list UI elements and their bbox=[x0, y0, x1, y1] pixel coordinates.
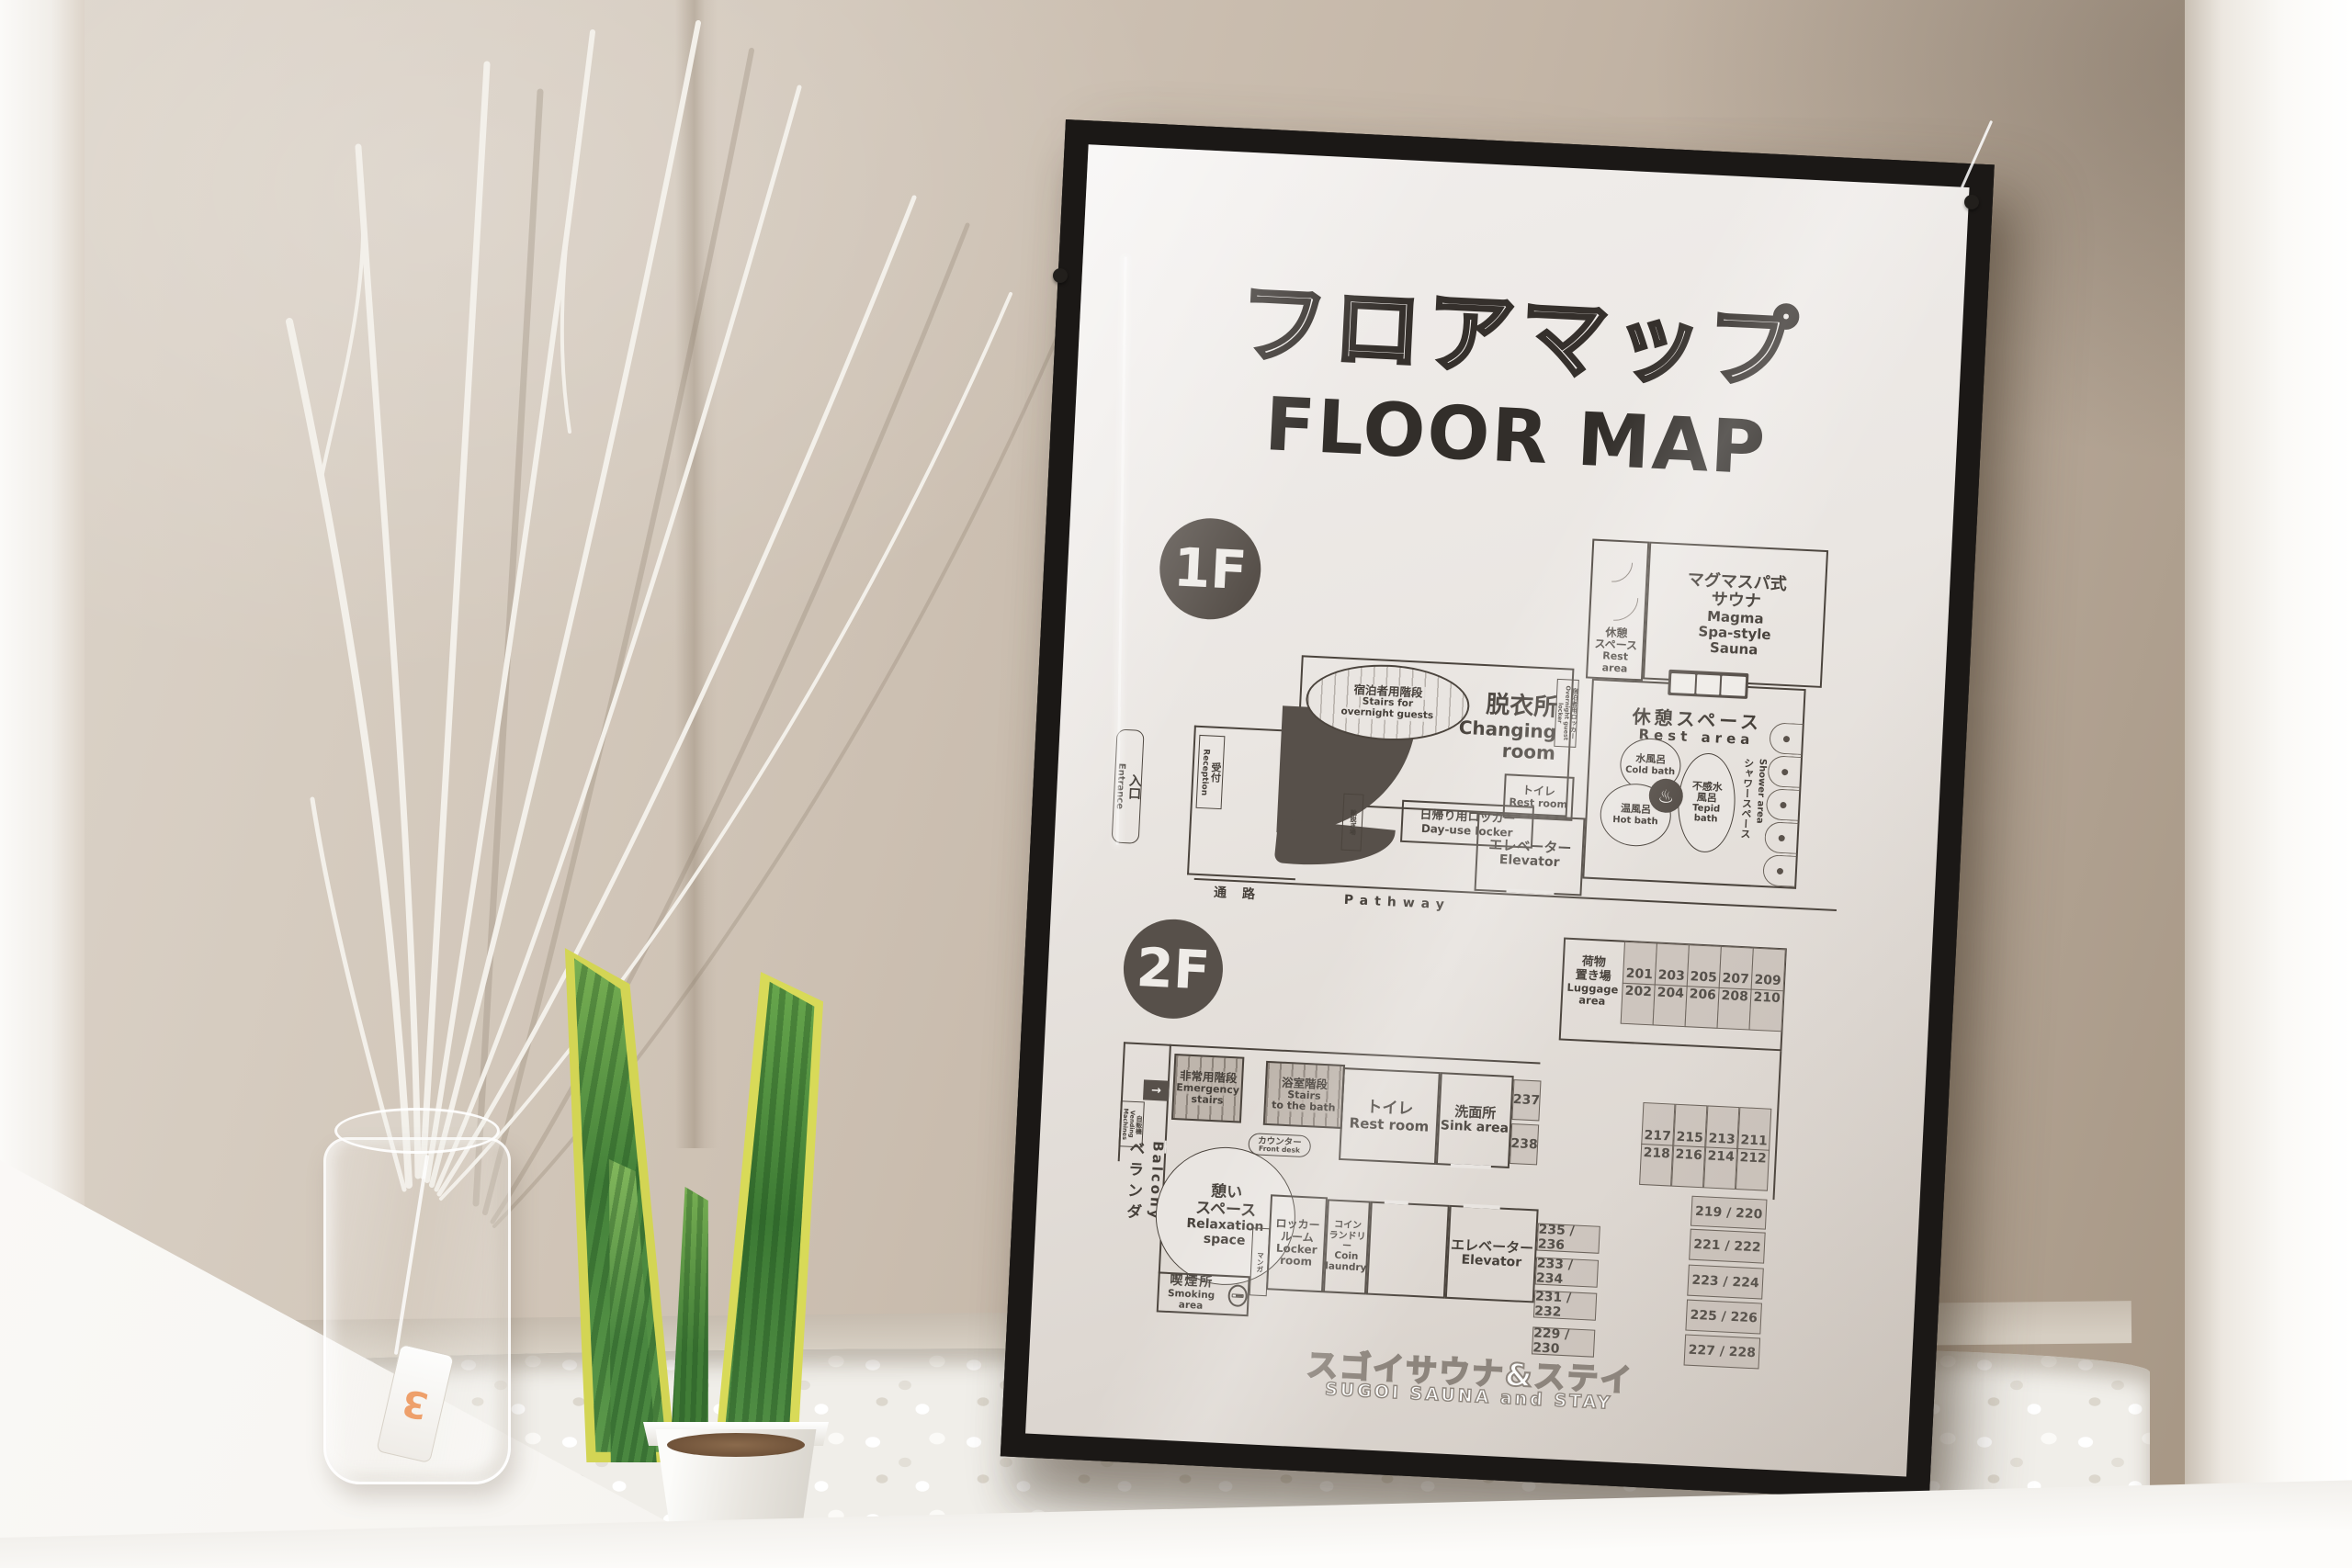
poster-paper: フロアマップ FLOOR MAP 1F Entrance 入口 Receptio… bbox=[1025, 144, 1969, 1476]
glass-glare bbox=[1025, 144, 1969, 1476]
frame-screw bbox=[1964, 195, 1979, 209]
plant-soil bbox=[667, 1433, 805, 1457]
right-wall-pillar bbox=[2185, 0, 2352, 1568]
snake-plant-leaf bbox=[654, 1187, 731, 1462]
frame-clip bbox=[1053, 268, 1068, 283]
glass-jar-lip bbox=[334, 1108, 500, 1154]
poster-frame: フロアマップ FLOOR MAP 1F Entrance 入口 Receptio… bbox=[1001, 119, 1995, 1502]
photo-scene: フロアマップ FLOOR MAP 1F Entrance 入口 Receptio… bbox=[0, 0, 2352, 1568]
